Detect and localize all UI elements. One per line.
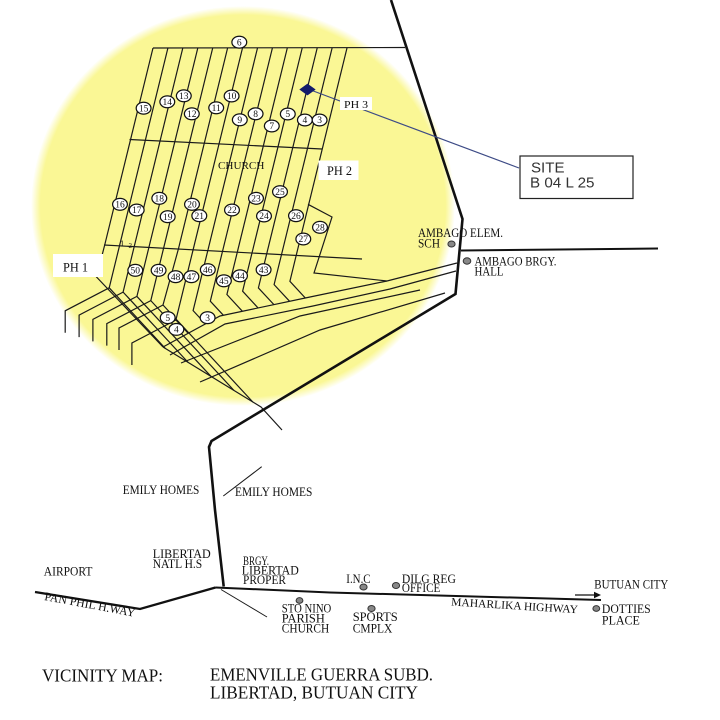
svg-text:16: 16 bbox=[115, 201, 125, 211]
svg-text:EMENVILLE GUERRA SUBD.: EMENVILLE GUERRA SUBD. bbox=[210, 665, 433, 685]
svg-text:20: 20 bbox=[187, 201, 197, 211]
svg-text:EMILY HOMES: EMILY HOMES bbox=[123, 483, 200, 497]
svg-text:SITE: SITE bbox=[531, 161, 565, 177]
svg-text:50: 50 bbox=[131, 267, 141, 277]
svg-text:49: 49 bbox=[154, 267, 164, 277]
svg-text:23: 23 bbox=[251, 195, 261, 205]
svg-text:28: 28 bbox=[315, 224, 325, 234]
svg-text:5: 5 bbox=[285, 110, 290, 120]
svg-text:CHURCH: CHURCH bbox=[218, 160, 264, 172]
svg-text:13: 13 bbox=[179, 92, 189, 102]
svg-text:22: 22 bbox=[227, 206, 237, 216]
svg-text:3: 3 bbox=[317, 116, 322, 126]
svg-text:6: 6 bbox=[237, 38, 242, 48]
svg-text:PH 3: PH 3 bbox=[344, 100, 368, 111]
svg-text:4: 4 bbox=[303, 116, 308, 126]
svg-text:48: 48 bbox=[171, 273, 181, 283]
svg-text:15: 15 bbox=[139, 104, 149, 114]
svg-text:26: 26 bbox=[291, 212, 301, 222]
svg-text:LIBERTAD, BUTUAN CITY: LIBERTAD, BUTUAN CITY bbox=[210, 683, 418, 703]
svg-text:BUTUAN CITY: BUTUAN CITY bbox=[594, 578, 668, 592]
svg-text:PAN PHIL H.WAY: PAN PHIL H.WAY bbox=[43, 589, 136, 620]
svg-text:44: 44 bbox=[235, 272, 245, 282]
svg-text:47: 47 bbox=[187, 273, 197, 283]
svg-text:11: 11 bbox=[212, 104, 221, 114]
svg-text:B 04 L 25: B 04 L 25 bbox=[530, 176, 595, 192]
svg-text:PH 1: PH 1 bbox=[63, 261, 88, 275]
svg-text:24: 24 bbox=[259, 212, 269, 222]
svg-text:12: 12 bbox=[187, 110, 197, 120]
svg-text:14: 14 bbox=[163, 98, 173, 108]
svg-text:OFFICE: OFFICE bbox=[402, 581, 441, 595]
svg-text:17: 17 bbox=[132, 206, 142, 216]
svg-text:10: 10 bbox=[227, 92, 237, 102]
svg-text:25: 25 bbox=[275, 188, 285, 198]
svg-text:27: 27 bbox=[299, 235, 309, 245]
svg-text:EMILY HOMES: EMILY HOMES bbox=[235, 485, 312, 499]
svg-text:8: 8 bbox=[253, 110, 258, 120]
svg-text:21: 21 bbox=[195, 212, 205, 222]
svg-text:HALL: HALL bbox=[475, 264, 504, 278]
svg-text:45: 45 bbox=[219, 277, 229, 287]
svg-text:19: 19 bbox=[163, 213, 173, 223]
svg-text:7: 7 bbox=[269, 122, 274, 132]
svg-text:5: 5 bbox=[165, 314, 170, 324]
svg-text:2: 2 bbox=[129, 242, 133, 250]
svg-text:46: 46 bbox=[203, 266, 213, 276]
svg-text:43: 43 bbox=[259, 266, 269, 276]
svg-text:PROPER: PROPER bbox=[243, 573, 287, 587]
svg-text:NATL H.S: NATL H.S bbox=[153, 557, 203, 571]
svg-text:SCH: SCH bbox=[418, 236, 440, 250]
svg-text:PLACE: PLACE bbox=[602, 614, 640, 628]
svg-text:AIRPORT: AIRPORT bbox=[44, 564, 93, 578]
svg-text:3: 3 bbox=[205, 314, 210, 324]
svg-text:4: 4 bbox=[174, 326, 179, 336]
svg-text:1: 1 bbox=[120, 238, 124, 248]
svg-text:PH 2: PH 2 bbox=[327, 164, 352, 178]
svg-text:9: 9 bbox=[237, 116, 242, 126]
svg-text:CHURCH: CHURCH bbox=[282, 622, 329, 636]
svg-text:CMPLX: CMPLX bbox=[353, 622, 393, 636]
svg-text:18: 18 bbox=[155, 195, 165, 205]
svg-text:VICINITY MAP:: VICINITY MAP: bbox=[42, 666, 163, 686]
svg-text:I.N.C: I.N.C bbox=[346, 572, 370, 586]
